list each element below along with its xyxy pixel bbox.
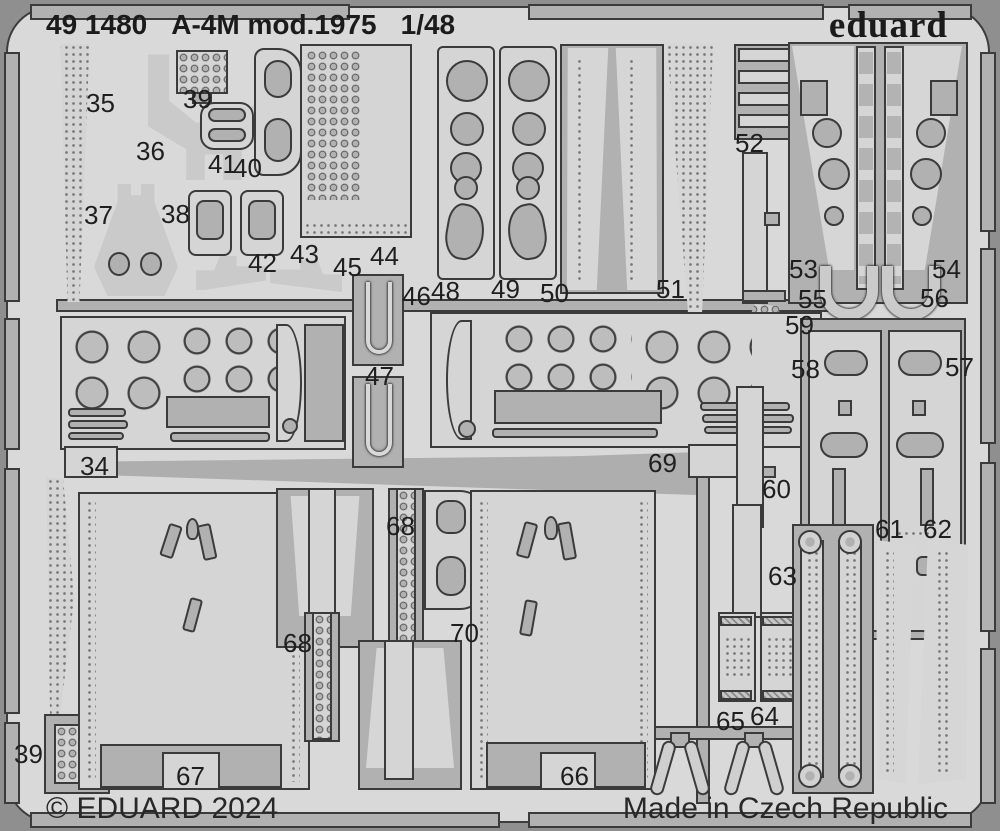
made-in-text: Made in Czech Republic [623, 792, 948, 826]
part-number-label: 52 [735, 130, 764, 156]
part-number-label: 39 [14, 741, 43, 767]
part-number-label: 67 [176, 763, 205, 789]
part-number-label: 63 [768, 563, 797, 589]
part-number-label: 68 [386, 513, 415, 539]
part-number-label: 51 [656, 276, 685, 302]
part-number-label: 45 [333, 254, 362, 280]
part-number-label: 50 [540, 280, 569, 306]
part-number-label: 65 [716, 708, 745, 734]
part-number-label: 60 [762, 476, 791, 502]
part-number-label: 66 [560, 763, 589, 789]
pe-fret-scan: 3539364140373842434544464849505152535455… [0, 0, 1000, 831]
catalog-number: 49 1480 [46, 9, 147, 40]
part-number-label: 37 [84, 202, 113, 228]
part-number-label: 56 [920, 285, 949, 311]
copyright-text: © EDUARD 2024 [46, 792, 278, 826]
sheet-scale: 1/48 [401, 9, 456, 40]
part-number-label: 64 [750, 703, 779, 729]
part-number-label: 48 [431, 278, 460, 304]
brand-logo: eduard [829, 4, 948, 47]
part-number-label: 49 [491, 276, 520, 302]
part-number-label: 69 [648, 450, 677, 476]
part-labels-layer: 3539364140373842434544464849505152535455… [0, 0, 1000, 831]
sheet-title: A-4M mod.1975 [171, 9, 376, 40]
part-number-label: 36 [136, 138, 165, 164]
part-number-label: 53 [789, 256, 818, 282]
part-number-label: 35 [86, 90, 115, 116]
part-number-label: 42 [248, 250, 277, 276]
part-number-label: 47 [365, 363, 394, 389]
part-number-label: 46 [402, 283, 431, 309]
part-number-label: 34 [80, 453, 109, 479]
part-number-label: 55 [798, 286, 827, 312]
part-number-label: 62 [923, 516, 952, 542]
part-number-label: 43 [290, 241, 319, 267]
part-number-label: 38 [161, 201, 190, 227]
header-text: 49 1480A-4M mod.19751/48 [46, 9, 479, 41]
part-number-label: 58 [791, 356, 820, 382]
part-number-label: 57 [945, 354, 974, 380]
part-number-label: 54 [932, 256, 961, 282]
part-number-label: 61 [875, 516, 904, 542]
part-number-label: 59 [785, 312, 814, 338]
part-number-label: 68 [283, 630, 312, 656]
part-number-label: 39 [183, 86, 212, 112]
part-number-label: 70 [450, 620, 479, 646]
part-number-label: 44 [370, 243, 399, 269]
part-number-label: 40 [233, 155, 262, 181]
